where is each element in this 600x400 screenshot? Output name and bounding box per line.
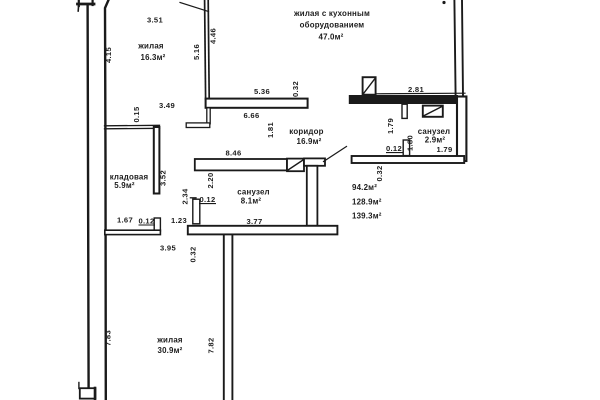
svg-text:3.52: 3.52: [158, 170, 167, 186]
svg-text:7.83: 7.83: [104, 330, 113, 346]
svg-text:1.67: 1.67: [117, 216, 133, 225]
svg-text:4.46: 4.46: [209, 28, 218, 44]
svg-text:2.9м²: 2.9м²: [425, 136, 446, 145]
svg-text:3.51: 3.51: [147, 16, 163, 25]
svg-text:санузел: санузел: [237, 188, 270, 197]
svg-text:0.32: 0.32: [375, 166, 384, 182]
svg-text:2.20: 2.20: [206, 173, 215, 189]
svg-text:1.80: 1.80: [406, 135, 415, 151]
svg-text:жилая: жилая: [137, 42, 164, 51]
svg-text:47.0м²: 47.0м²: [318, 33, 343, 42]
svg-text:8.46: 8.46: [226, 149, 242, 158]
svg-text:5.16: 5.16: [192, 44, 201, 60]
svg-text:5.9м²: 5.9м²: [114, 181, 135, 190]
svg-text:5.36: 5.36: [254, 87, 270, 96]
svg-text:оборудованием: оборудованием: [300, 21, 365, 30]
svg-text:139.3м²: 139.3м²: [352, 212, 382, 221]
svg-text:0.32: 0.32: [291, 81, 300, 97]
svg-text:128.9м²: 128.9м²: [352, 198, 382, 207]
svg-text:7.82: 7.82: [207, 338, 216, 354]
svg-text:16.9м²: 16.9м²: [296, 137, 321, 146]
svg-text:0.12: 0.12: [200, 195, 216, 204]
svg-text:жилая с кухонным: жилая с кухонным: [293, 9, 370, 18]
svg-text:6.66: 6.66: [244, 111, 260, 120]
svg-text:8.1м²: 8.1м²: [241, 197, 262, 206]
svg-text:30.9м²: 30.9м²: [157, 346, 182, 355]
svg-text:1.23: 1.23: [171, 216, 187, 225]
svg-text:4.15: 4.15: [104, 47, 113, 63]
svg-text:0.12: 0.12: [139, 217, 155, 226]
svg-text:коридор: коридор: [289, 127, 323, 136]
svg-text:3.77: 3.77: [247, 217, 263, 226]
svg-text:16.3м²: 16.3м²: [140, 53, 165, 62]
svg-text:1.81: 1.81: [266, 122, 275, 138]
svg-text:2.34: 2.34: [181, 188, 190, 204]
svg-text:3.95: 3.95: [160, 244, 176, 253]
svg-text:жилая: жилая: [156, 336, 183, 345]
svg-text:0.32: 0.32: [189, 247, 198, 263]
svg-text:1.79: 1.79: [437, 145, 453, 154]
svg-text:0.15: 0.15: [132, 106, 141, 122]
svg-text:1.79: 1.79: [386, 118, 395, 134]
svg-text:3.49: 3.49: [159, 101, 175, 110]
svg-text:2.81: 2.81: [408, 85, 424, 94]
svg-text:94.2м²: 94.2м²: [352, 183, 377, 192]
svg-text:0.12: 0.12: [386, 144, 402, 153]
